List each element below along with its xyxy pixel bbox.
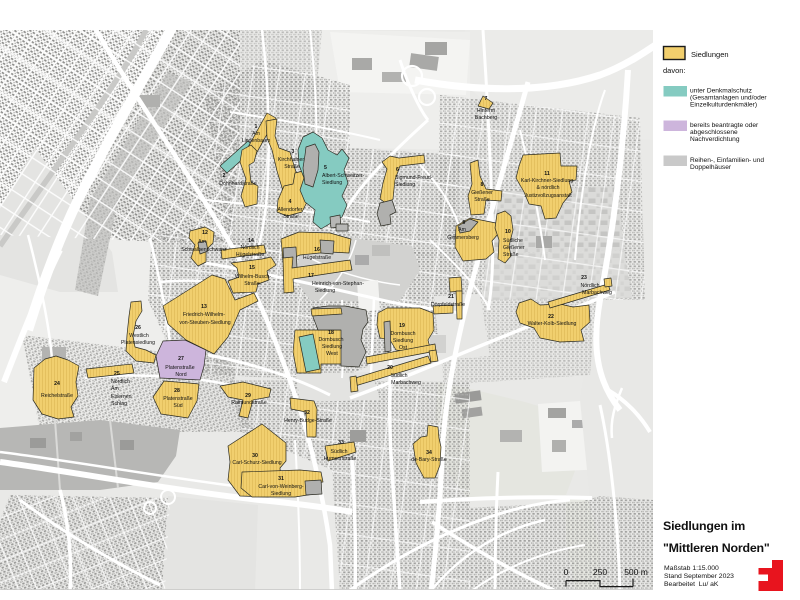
svg-text:22: 22 — [548, 314, 554, 320]
svg-text:Schwalbenschwanz: Schwalbenschwanz — [181, 247, 227, 253]
svg-text:Dohnhardstraße: Dohnhardstraße — [219, 181, 257, 187]
svg-text:Albert-Schweitzer-: Albert-Schweitzer- — [322, 173, 365, 179]
svg-text:Heinrich-von-Stephan-: Heinrich-von-Stephan- — [312, 281, 364, 287]
svg-text:Dornbusch: Dornbusch — [390, 331, 415, 337]
svg-text:"Mittleren Norden": "Mittleren Norden" — [663, 541, 770, 555]
svg-text:(Gesamtanlagen und/oder: (Gesamtanlagen und/oder — [690, 95, 767, 102]
svg-text:Nachverdichtung: Nachverdichtung — [690, 136, 740, 143]
svg-text:bereits beantragte oder: bereits beantragte oder — [690, 122, 759, 129]
svg-text:Straße: Straße — [244, 281, 260, 287]
svg-text:Südlich: Südlich — [330, 449, 347, 455]
svg-text:Allendorfer: Allendorfer — [277, 207, 302, 213]
svg-text:Hinterm: Hinterm — [477, 108, 495, 114]
svg-text:24: 24 — [54, 381, 60, 387]
svg-text:Dornbusch: Dornbusch — [318, 337, 343, 343]
svg-text:Nord: Nord — [175, 372, 186, 378]
svg-text:Platenstraße: Platenstraße — [163, 396, 193, 402]
svg-text:Siedlung: Siedlung — [322, 344, 342, 350]
svg-text:unter Denkmalschutz: unter Denkmalschutz — [690, 88, 752, 95]
svg-text:21: 21 — [448, 294, 454, 300]
svg-text:Gießener: Gießener — [503, 245, 525, 251]
svg-text:Südlich: Südlich — [390, 373, 407, 379]
svg-text:1: 1 — [255, 124, 258, 130]
svg-text:25: 25 — [114, 371, 120, 377]
svg-text:Am: Am — [458, 227, 466, 233]
svg-text:Bearbeitet Lu/ aK: Bearbeitet Lu/ aK — [664, 581, 719, 588]
svg-text:19: 19 — [399, 323, 405, 329]
svg-text:Maßstab 1:15.000: Maßstab 1:15.000 — [664, 565, 719, 572]
svg-text:& nördlich: & nördlich — [536, 185, 559, 191]
svg-text:Wilhelm-Busch-: Wilhelm-Busch- — [235, 274, 272, 280]
svg-text:Carl-Schurz-Siedlung: Carl-Schurz-Siedlung — [232, 460, 281, 466]
svg-text:Siedlung: Siedlung — [315, 288, 335, 294]
svg-text:Karl-Kirchner-Siedlung: Karl-Kirchner-Siedlung — [521, 178, 573, 184]
svg-text:Friedrich-Wilhelm-: Friedrich-Wilhelm- — [183, 312, 225, 318]
svg-text:Bachberg: Bachberg — [475, 115, 497, 121]
svg-text:28: 28 — [174, 388, 180, 394]
svg-text:Hügelstraße: Hügelstraße — [236, 252, 264, 258]
svg-text:Nördlich: Nördlich — [580, 283, 599, 289]
svg-text:8: 8 — [481, 182, 484, 188]
svg-text:9: 9 — [463, 220, 466, 226]
svg-text:Doppelhäuser: Doppelhäuser — [690, 164, 732, 171]
svg-text:4: 4 — [289, 199, 292, 205]
svg-text:Einzelkulturdenkmäler): Einzelkulturdenkmäler) — [690, 102, 757, 109]
svg-text:Raimundstraße: Raimundstraße — [231, 400, 267, 406]
svg-text:7: 7 — [485, 96, 488, 102]
svg-text:17: 17 — [308, 273, 314, 279]
svg-text:0: 0 — [564, 567, 569, 577]
svg-text:Carl-von-Weinberg-: Carl-von-Weinberg- — [258, 484, 303, 490]
svg-text:Straße: Straße — [474, 197, 490, 203]
svg-text:Hügelstraße: Hügelstraße — [303, 255, 331, 261]
svg-text:32: 32 — [304, 410, 310, 416]
svg-text:26: 26 — [135, 325, 141, 331]
svg-text:30: 30 — [252, 453, 258, 459]
svg-text:23: 23 — [581, 275, 587, 281]
svg-text:5: 5 — [324, 165, 327, 171]
svg-text:Schlag: Schlag — [111, 401, 127, 407]
svg-text:Siedlung: Siedlung — [271, 491, 291, 497]
svg-text:15: 15 — [249, 265, 255, 271]
svg-text:Nördlich: Nördlich — [240, 245, 259, 251]
svg-text:Platenstraße: Platenstraße — [165, 365, 195, 371]
svg-text:Süd: Süd — [173, 403, 182, 409]
svg-text:Siedlung: Siedlung — [393, 338, 413, 344]
svg-text:Ost: Ost — [399, 345, 408, 351]
svg-text:Justizvollzugsanstalt: Justizvollzugsanstalt — [524, 193, 572, 199]
svg-text:Marbachweg: Marbachweg — [582, 290, 612, 296]
svg-text:13: 13 — [201, 304, 207, 310]
svg-text:Marbachweg: Marbachweg — [391, 380, 421, 386]
svg-text:Am: Am — [111, 386, 119, 392]
svg-text:16: 16 — [314, 247, 320, 253]
svg-text:29: 29 — [245, 393, 251, 399]
svg-text:Gimmersberg: Gimmersberg — [447, 235, 479, 241]
svg-text:Siedlungen: Siedlungen — [691, 50, 729, 59]
svg-text:Henry-Budge-Straße: Henry-Budge-Straße — [284, 418, 332, 424]
svg-text:18: 18 — [328, 330, 334, 336]
svg-text:14: 14 — [248, 238, 254, 244]
svg-text:Reihen-, Einfamilien- und: Reihen-, Einfamilien- und — [690, 157, 764, 164]
svg-text:6: 6 — [396, 167, 399, 173]
svg-text:20: 20 — [387, 365, 393, 371]
svg-text:Platensiedlung: Platensiedlung — [121, 340, 155, 346]
svg-text:33: 33 — [338, 440, 344, 446]
svg-text:Eisernen: Eisernen — [111, 394, 132, 400]
svg-text:27: 27 — [178, 356, 184, 362]
svg-text:Stand September 2023: Stand September 2023 — [664, 573, 734, 580]
svg-text:de-Bary-Straße: de-Bary-Straße — [411, 457, 447, 463]
svg-text:Lindenbaum: Lindenbaum — [242, 138, 271, 144]
svg-text:11: 11 — [544, 171, 550, 177]
svg-text:Reichelstraße: Reichelstraße — [41, 393, 73, 399]
svg-text:von-Steuben-Siedlung: von-Steuben-Siedlung — [179, 320, 230, 326]
svg-text:34: 34 — [426, 450, 432, 456]
svg-text:2: 2 — [223, 173, 226, 179]
svg-text:Humserstraße: Humserstraße — [324, 456, 357, 462]
svg-text:abgeschlossene: abgeschlossene — [690, 129, 738, 136]
svg-text:Am: Am — [252, 131, 260, 137]
svg-text:Siedlung: Siedlung — [322, 180, 342, 186]
svg-text:10: 10 — [505, 229, 511, 235]
svg-text:Sigmund-Freud-: Sigmund-Freud- — [395, 175, 433, 181]
svg-text:500 m: 500 m — [624, 567, 648, 577]
svg-text:250: 250 — [593, 567, 607, 577]
svg-text:Nördlich: Nördlich — [111, 379, 130, 385]
svg-text:Am: Am — [198, 239, 206, 245]
svg-text:Straße: Straße — [284, 164, 300, 170]
svg-text:davon:: davon: — [663, 66, 686, 75]
svg-text:Südliche: Südliche — [503, 238, 523, 244]
svg-text:West: West — [326, 351, 338, 357]
svg-text:Straße: Straße — [503, 252, 519, 258]
svg-text:Siedlung: Siedlung — [395, 182, 415, 188]
svg-text:Westlich: Westlich — [129, 333, 149, 339]
svg-text:Straße: Straße — [283, 214, 299, 220]
svg-text:3: 3 — [292, 149, 295, 155]
svg-text:Kirchhainer: Kirchhainer — [278, 157, 305, 163]
svg-text:Siedlungen im: Siedlungen im — [663, 519, 745, 533]
svg-text:Walter-Kolb-Siedlung: Walter-Kolb-Siedlung — [528, 321, 577, 327]
svg-text:31: 31 — [278, 476, 284, 482]
svg-text:Gießener: Gießener — [471, 190, 493, 196]
svg-text:Dörpfeldstraße: Dörpfeldstraße — [431, 302, 465, 308]
svg-text:12: 12 — [202, 230, 208, 236]
